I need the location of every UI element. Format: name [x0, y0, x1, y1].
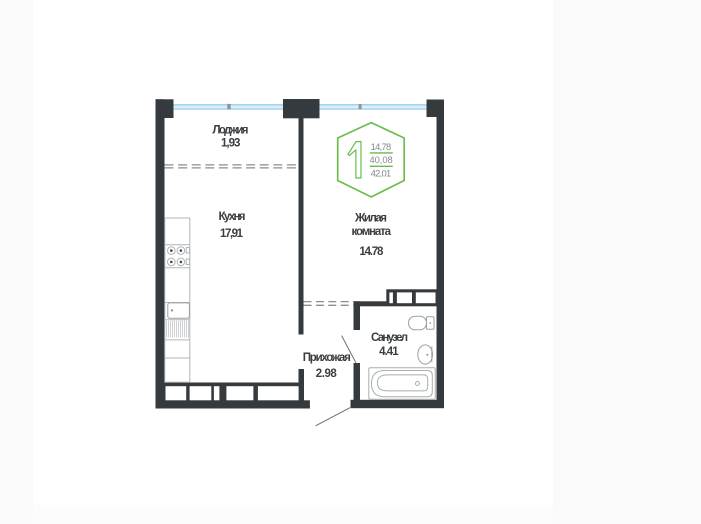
svg-text:14,78: 14,78: [371, 141, 392, 152]
svg-text:1,93: 1,93: [221, 137, 241, 149]
svg-text:4.41: 4.41: [379, 346, 399, 358]
svg-text:Лоджия: Лоджия: [213, 125, 249, 137]
svg-text:2.98: 2.98: [316, 368, 338, 380]
svg-text:17,91: 17,91: [220, 228, 244, 240]
svg-text:Кухня: Кухня: [219, 211, 246, 223]
svg-text:40,08: 40,08: [370, 154, 393, 165]
svg-text:комната: комната: [352, 226, 392, 238]
svg-text:14.78: 14.78: [359, 246, 384, 258]
svg-text:Санузел: Санузел: [371, 332, 408, 344]
svg-text:Прихожая: Прихожая: [303, 352, 351, 364]
svg-text:42,01: 42,01: [371, 168, 392, 179]
svg-text:Жилая: Жилая: [354, 212, 387, 224]
